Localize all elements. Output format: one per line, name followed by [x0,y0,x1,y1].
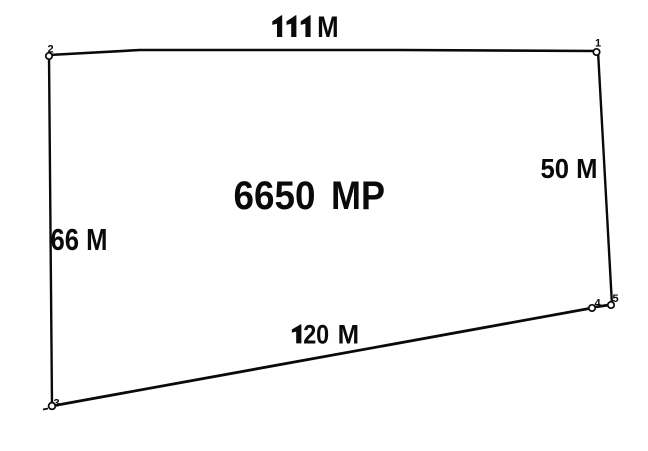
svg-text:4: 4 [595,298,602,310]
svg-text:M: M [317,11,339,44]
svg-text:3: 3 [54,398,60,410]
svg-text:6650: 6650 [234,174,316,218]
svg-text:50 M: 50 M [541,153,598,184]
svg-text:M: M [338,319,360,349]
svg-text:66 M: 66 M [51,222,108,257]
svg-text:20: 20 [303,319,329,349]
svg-text:5: 5 [613,293,619,305]
svg-text:1: 1 [595,38,601,50]
svg-text:2: 2 [48,44,54,56]
svg-text:MP: MP [331,174,385,218]
